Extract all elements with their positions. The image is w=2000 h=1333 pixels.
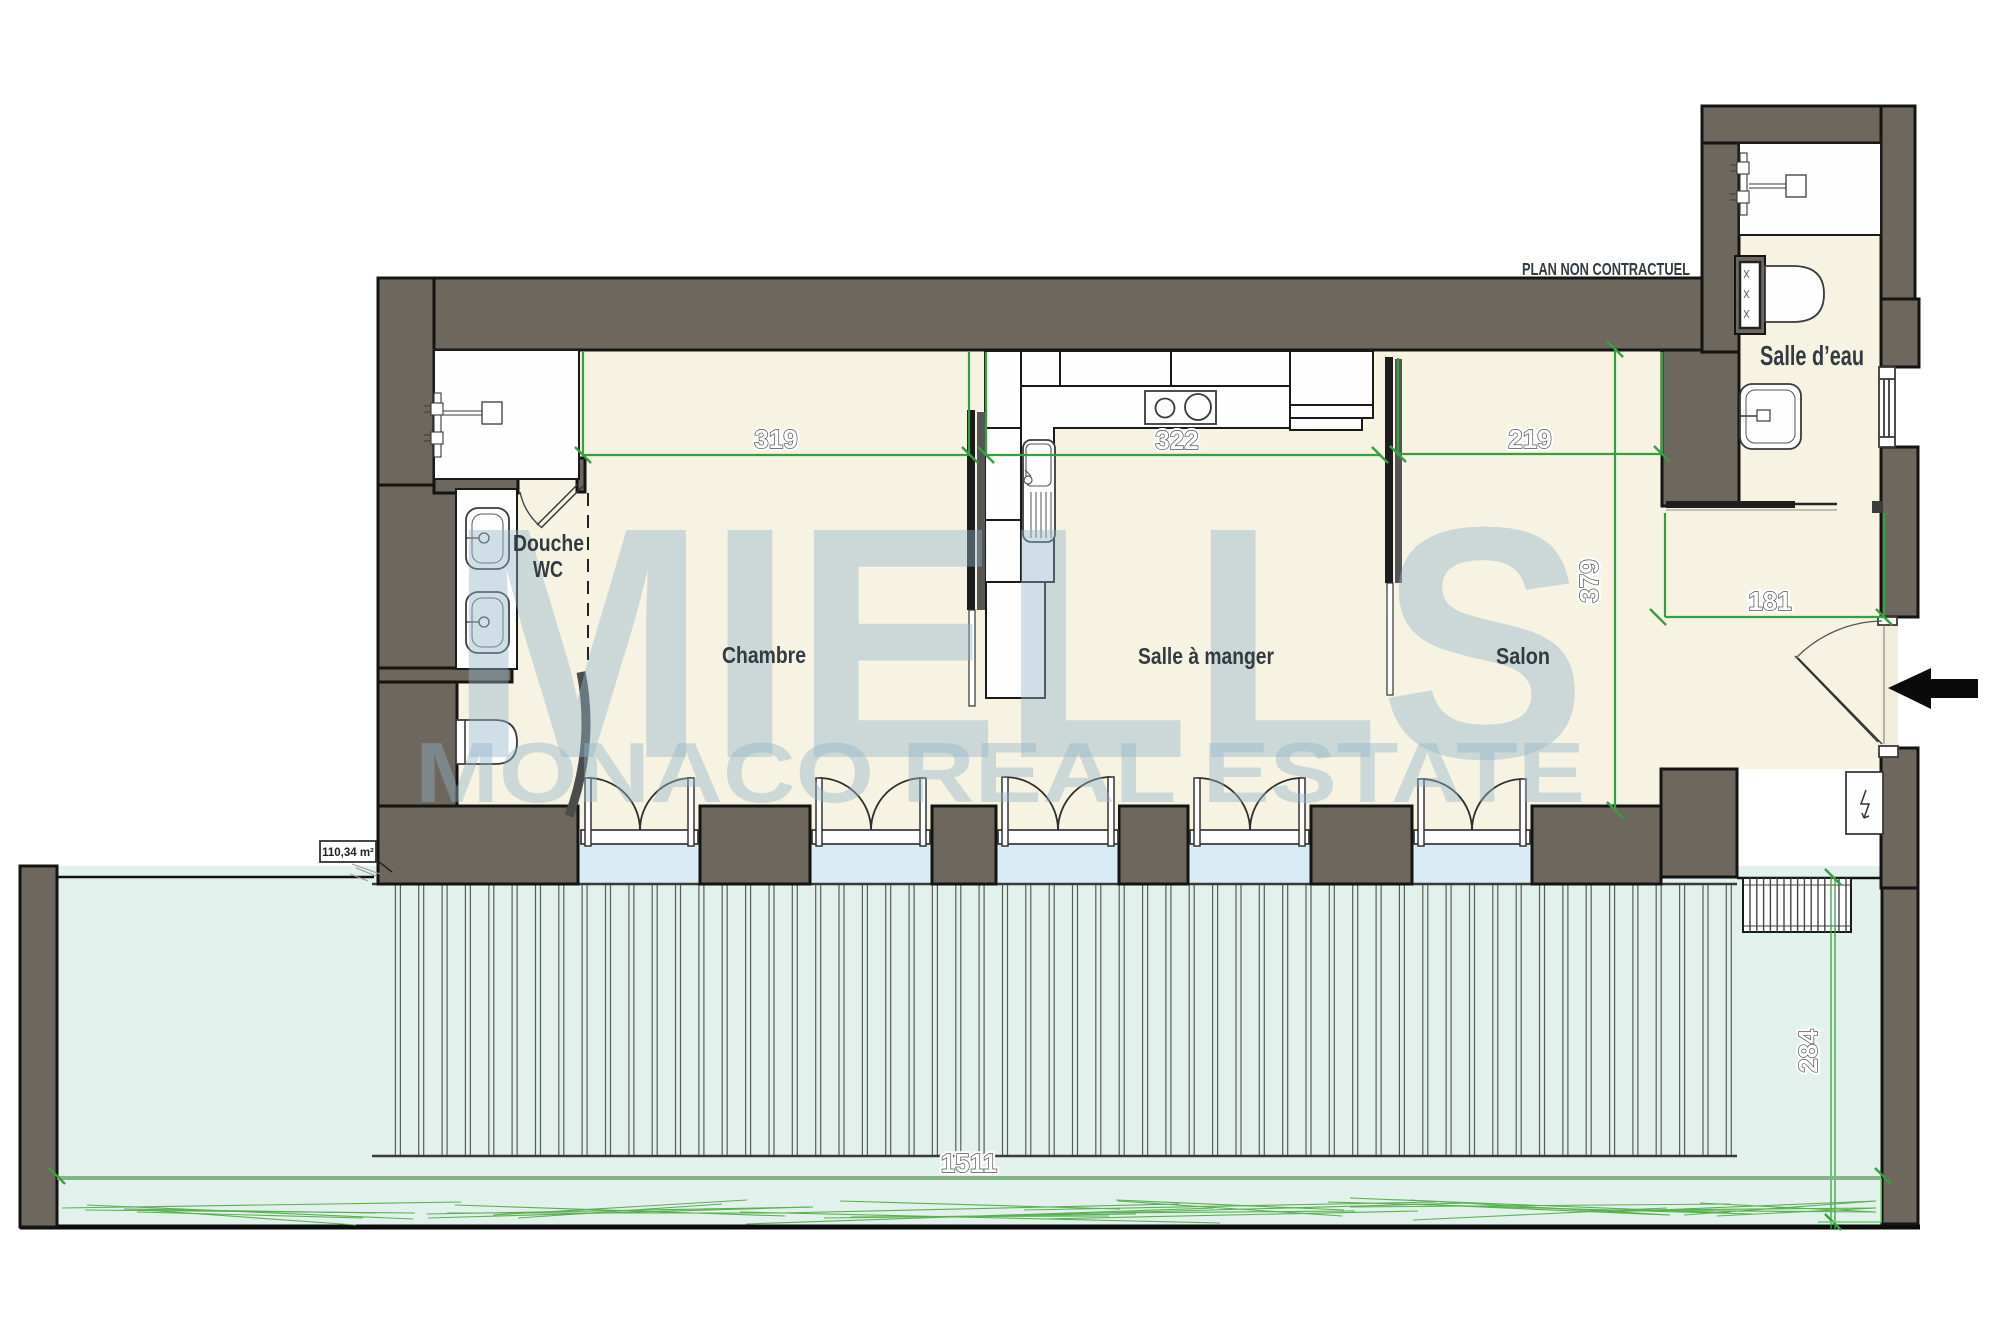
svg-text:181: 181 <box>1748 586 1791 616</box>
svg-text:319: 319 <box>754 424 797 454</box>
svg-text:Salon: Salon <box>1496 643 1550 669</box>
svg-text:322: 322 <box>1155 425 1198 455</box>
svg-text:379: 379 <box>1574 559 1604 602</box>
svg-text:Salle à manger: Salle à manger <box>1138 643 1274 669</box>
svg-text:Douche: Douche <box>513 530 584 556</box>
svg-text:1511: 1511 <box>941 1148 997 1178</box>
svg-text:WC: WC <box>533 556 563 582</box>
svg-text:Chambre: Chambre <box>722 642 806 668</box>
svg-text:MONACO REAL ESTATE: MONACO REAL ESTATE <box>415 726 1585 821</box>
svg-text:PLAN NON CONTRACTUEL: PLAN NON CONTRACTUEL <box>1522 259 1690 279</box>
svg-text:Salle d’eau: Salle d’eau <box>1760 340 1864 371</box>
svg-text:110,34 m²: 110,34 m² <box>322 847 374 859</box>
svg-text:219: 219 <box>1508 424 1551 454</box>
svg-text:284: 284 <box>1793 1029 1823 1073</box>
